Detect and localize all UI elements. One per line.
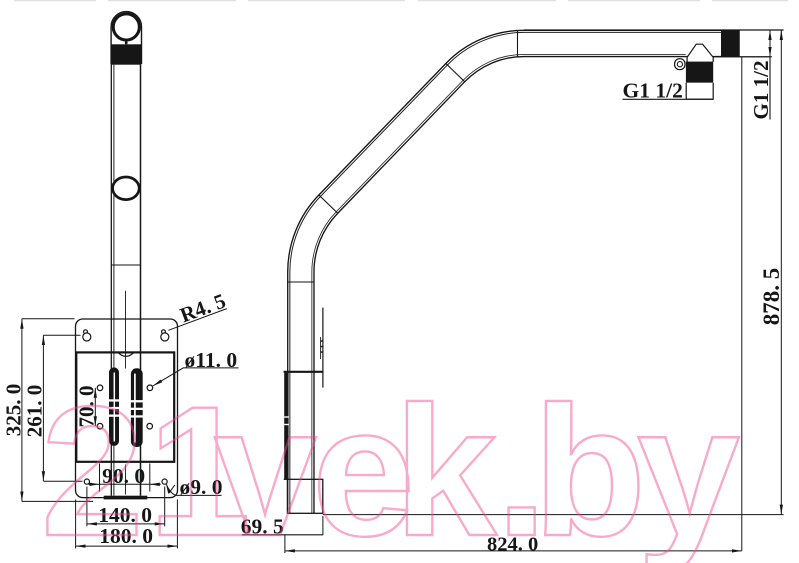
svg-text:G1 1/2: G1 1/2	[749, 61, 773, 120]
svg-text:878. 5: 878. 5	[759, 268, 784, 326]
